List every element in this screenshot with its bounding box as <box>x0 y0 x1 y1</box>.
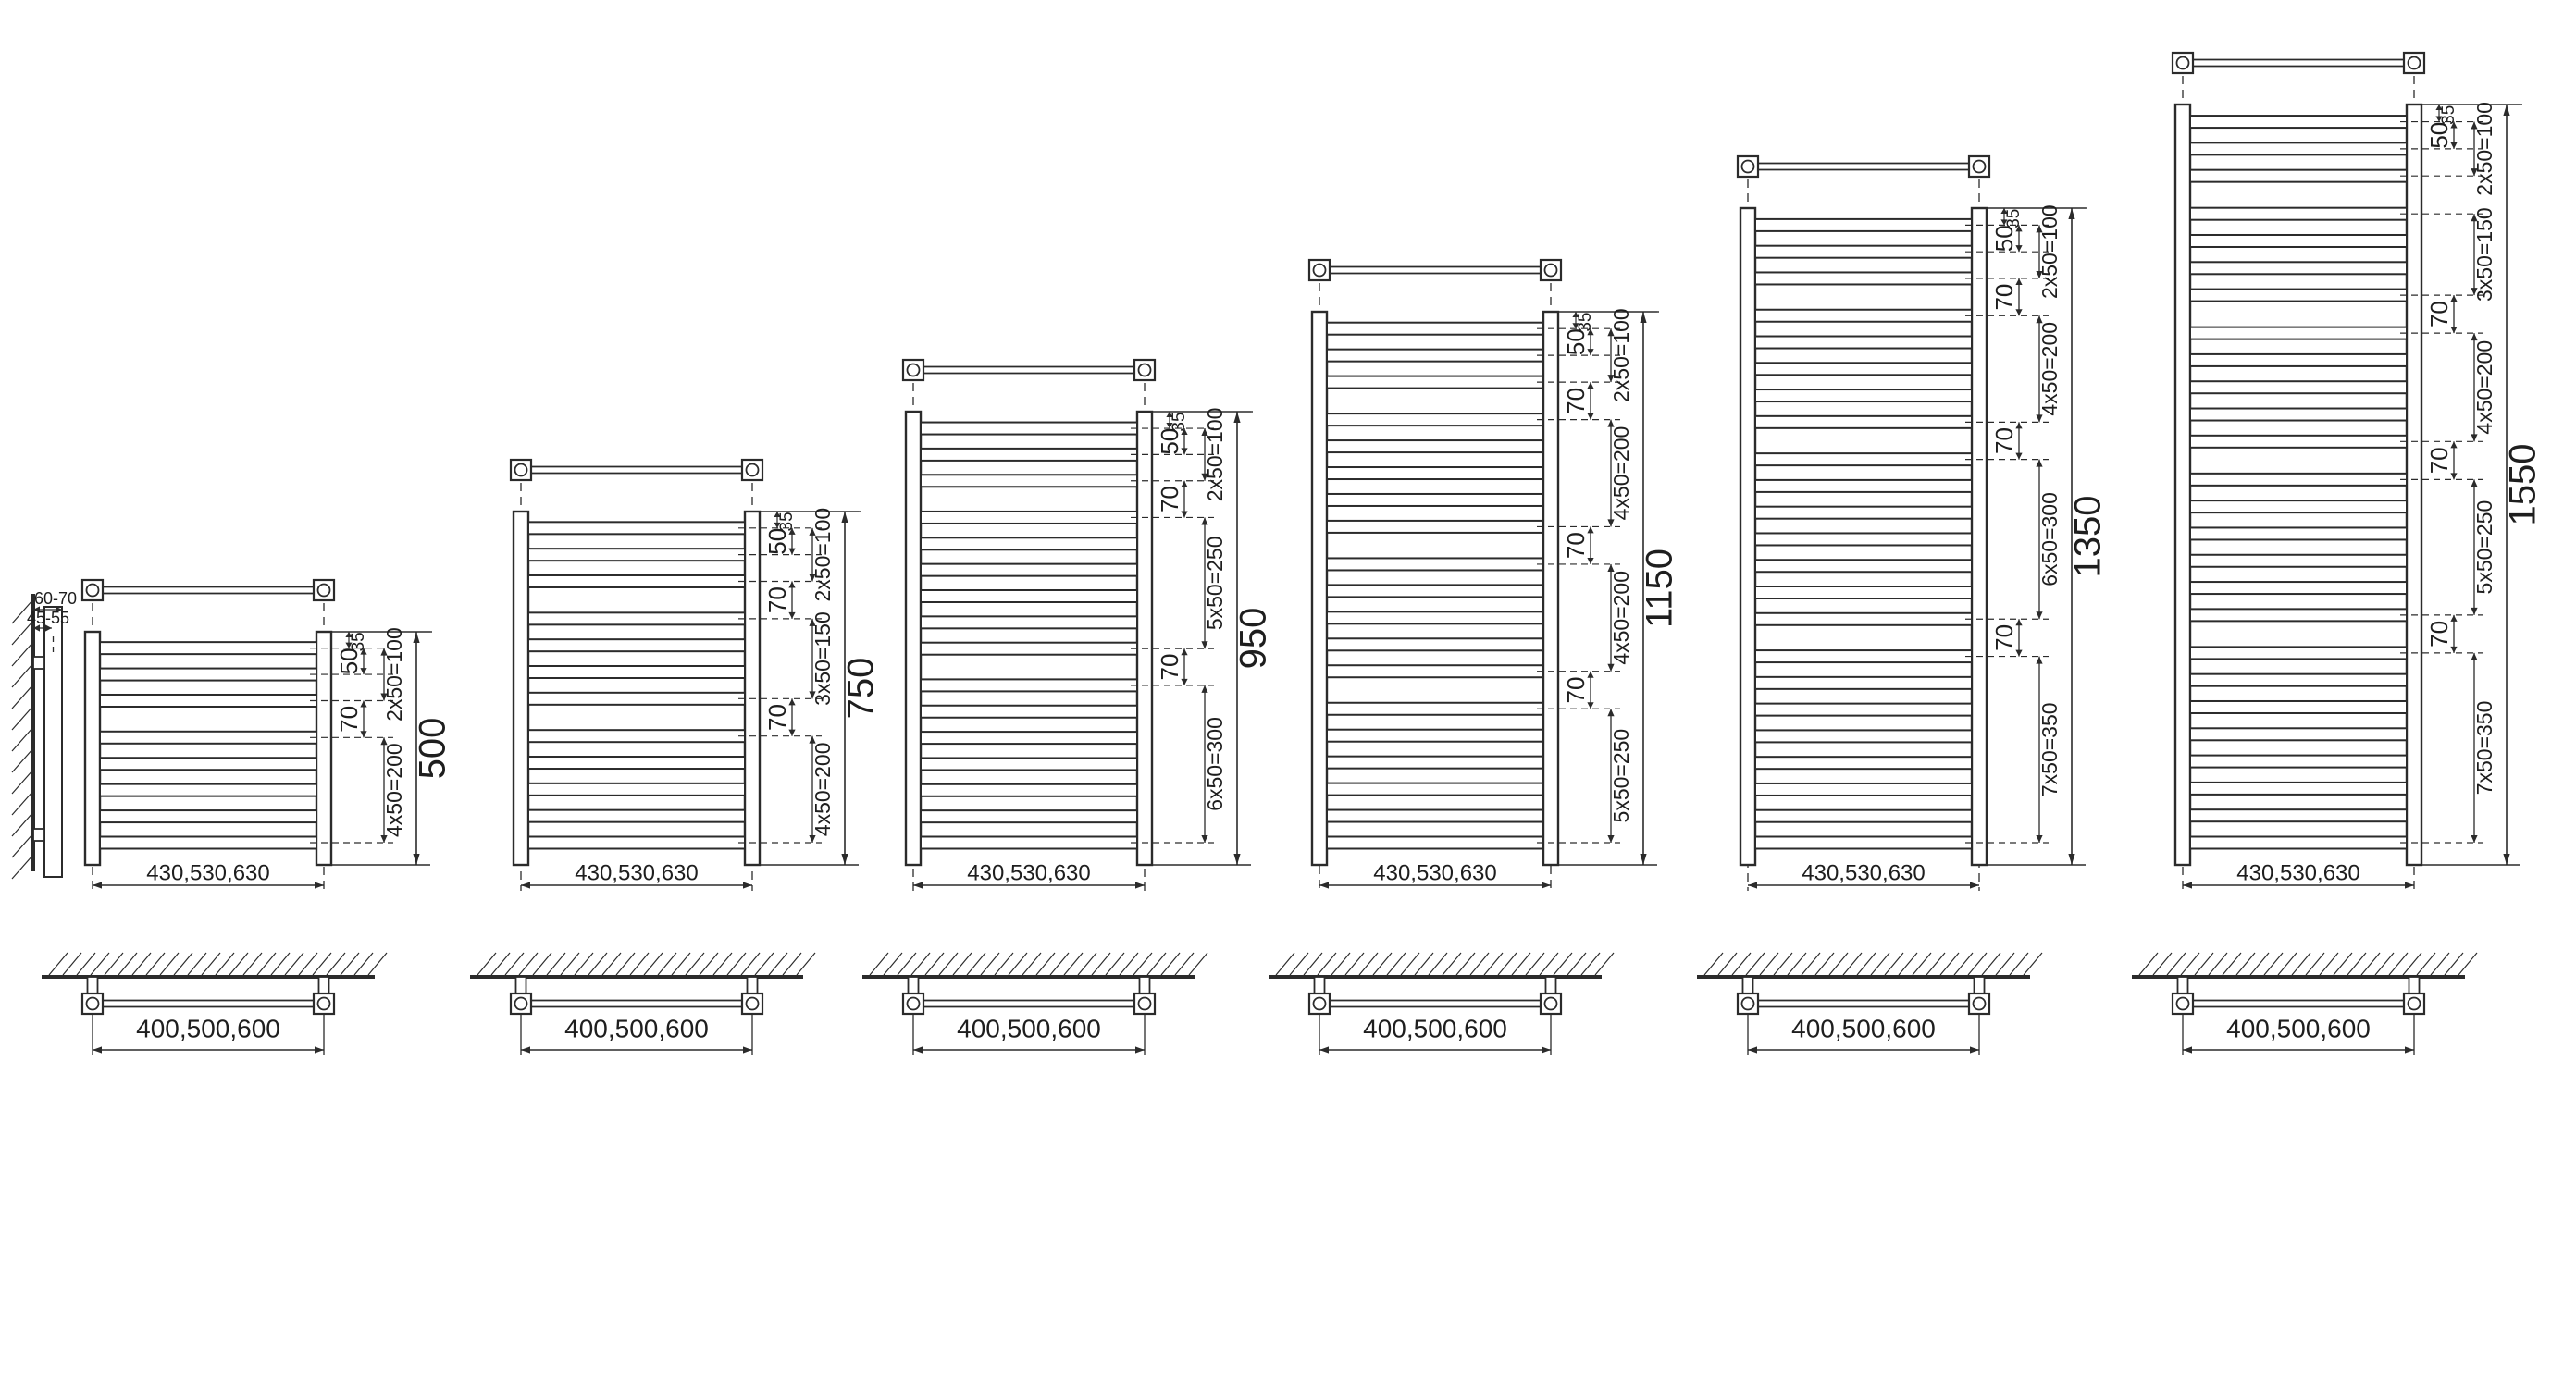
pitch-dimension: 50 <box>763 528 796 555</box>
top-offset-dim-label: 35 <box>2439 105 2458 125</box>
top-offset-dimension: 35 <box>2435 105 2458 125</box>
gap-dimension: 70 <box>763 581 796 618</box>
height-dim-label: 750 <box>841 658 882 720</box>
pitch-dim-label: 50 <box>763 528 791 555</box>
gap-dim-label: 70 <box>2425 447 2453 474</box>
group-dim-label: 2x50=100 <box>382 627 406 722</box>
width-dimension: 430,530,630 <box>521 860 752 888</box>
mount-spacing-label: 400,500,600 <box>2226 1014 2371 1042</box>
group-dimension: 2x50=100 <box>809 508 835 602</box>
mount-width-dimension: 400,500,600 <box>521 1014 752 1053</box>
gap-dim-label: 70 <box>1990 427 2018 454</box>
group-dim-label: 6x50=300 <box>1203 717 1227 811</box>
gap-dim-label: 70 <box>763 586 791 613</box>
group-dim-label: 7x50=350 <box>2472 701 2496 796</box>
pitch-dim-label: 50 <box>1562 328 1590 355</box>
front-view <box>2175 105 2421 865</box>
width-options-label: 430,530,630 <box>1373 860 1496 885</box>
radiator-500: 50035502x50=100704x50=200430,530,630400,… <box>42 580 453 1055</box>
group-dimension: 2x50=100 <box>380 627 406 722</box>
group-dim-label: 2x50=100 <box>1203 408 1227 502</box>
group-dimension: 2x50=100 <box>2036 204 2062 299</box>
overall-height-dimension: 500 <box>413 632 453 865</box>
width-options-label: 430,530,630 <box>1802 860 1925 885</box>
gap-dimension: 70 <box>763 698 796 735</box>
group-dim-label: 5x50=250 <box>1203 536 1227 630</box>
group-dimension: 3x50=150 <box>2471 207 2496 302</box>
width-dimension: 430,530,630 <box>2183 860 2414 888</box>
pitch-dimension: 50 <box>1562 328 1594 355</box>
group-dimension: 4x50=200 <box>1607 420 1633 527</box>
group-dimension: 2x50=100 <box>1201 408 1227 502</box>
pitch-dimension: 50 <box>335 648 367 674</box>
gap-dimension: 70 <box>1990 278 2023 315</box>
gap-dimension: 70 <box>1562 672 1594 709</box>
pitch-dim-label: 50 <box>335 648 363 674</box>
radiator-1550: 155035502x50=1003x50=150704x50=200705x50… <box>2132 53 2544 1055</box>
group-dimension: 2x50=100 <box>1607 308 1633 402</box>
group-dimension: 4x50=200 <box>809 736 835 843</box>
group-dim-label: 6x50=300 <box>2037 492 2062 586</box>
width-options-label: 430,530,630 <box>2236 860 2359 885</box>
pitch-dim-label: 50 <box>1156 428 1183 455</box>
height-dim-label: 1350 <box>2068 496 2109 578</box>
width-dimension: 430,530,630 <box>913 860 1145 888</box>
front-view <box>1740 208 1987 865</box>
gap-dim-label: 70 <box>1156 486 1183 512</box>
gap-dim-label: 70 <box>2425 301 2453 327</box>
group-dimension: 7x50=350 <box>2471 653 2496 843</box>
group-dim-label: 7x50=350 <box>2037 702 2062 796</box>
gap-dimension: 70 <box>1990 422 2023 459</box>
mount-spacing-label: 400,500,600 <box>957 1014 1101 1042</box>
width-dimension: 430,530,630 <box>1748 860 1979 888</box>
mount-spacing-label: 400,500,600 <box>1791 1014 1936 1042</box>
overall-height-dimension: 750 <box>841 512 882 865</box>
radiator-1350: 135035502x50=100704x50=200706x50=300707x… <box>1697 156 2109 1055</box>
overall-height-dimension: 1550 <box>2503 105 2544 865</box>
top-view <box>1309 260 1561 280</box>
gap-dimension: 70 <box>335 700 367 737</box>
pitch-dim-label: 50 <box>2425 122 2453 149</box>
height-dim-label: 500 <box>413 718 453 780</box>
width-options-label: 430,530,630 <box>967 860 1090 885</box>
gap-dim-label: 70 <box>763 704 791 731</box>
group-dim-label: 4x50=200 <box>811 742 835 836</box>
gap-dim-label: 70 <box>1990 624 2018 651</box>
mount-width-dimension: 400,500,600 <box>2183 1014 2414 1053</box>
group-dim-label: 5x50=250 <box>1609 729 1633 823</box>
mount-spacing-label: 400,500,600 <box>136 1014 280 1042</box>
gap-dimension: 70 <box>2425 441 2458 479</box>
gap-dimension: 70 <box>1990 619 2023 656</box>
width-dimension: 430,530,630 <box>1319 860 1551 888</box>
radiator-1150: 115035502x50=100704x50=200704x50=200705x… <box>1269 260 1680 1055</box>
group-dimension: 3x50=150 <box>809 611 835 706</box>
group-dim-label: 3x50=150 <box>811 611 835 706</box>
group-dimension: 5x50=250 <box>2471 479 2496 615</box>
group-dim-label: 2x50=100 <box>2472 102 2496 196</box>
group-dimension: 6x50=300 <box>1201 685 1227 843</box>
depth-total-label: 60-70 <box>34 589 77 608</box>
group-dimension: 7x50=350 <box>2036 657 2062 843</box>
group-dimension: 4x50=200 <box>380 737 406 843</box>
front-view <box>514 512 760 865</box>
gap-dim-label: 70 <box>1156 654 1183 681</box>
group-dim-label: 4x50=200 <box>2472 340 2496 435</box>
gap-dim-label: 70 <box>1562 677 1590 704</box>
group-dim-label: 4x50=200 <box>2037 322 2062 416</box>
group-dimension: 4x50=200 <box>2036 315 2062 422</box>
height-dim-label: 950 <box>1233 608 1274 670</box>
overall-height-dimension: 950 <box>1233 412 1274 865</box>
pitch-dimension: 50 <box>2425 122 2458 149</box>
group-dimension: 5x50=250 <box>1201 517 1227 648</box>
group-dimension: 2x50=100 <box>2471 102 2496 196</box>
group-dim-label: 2x50=100 <box>811 508 835 602</box>
gap-dim-label: 70 <box>1990 284 2018 311</box>
pitch-dimension: 50 <box>1156 428 1188 455</box>
group-dimension: 6x50=300 <box>2036 460 2062 620</box>
pitch-dim-label: 50 <box>1990 225 2018 252</box>
front-view <box>1312 312 1558 865</box>
height-dim-label: 1550 <box>2503 444 2544 526</box>
mount-width-dimension: 400,500,600 <box>913 1014 1145 1053</box>
overall-height-dimension: 1350 <box>2068 208 2109 865</box>
height-dim-label: 1150 <box>1640 549 1680 628</box>
top-view <box>903 360 1155 380</box>
mount-width-dimension: 400,500,600 <box>1319 1014 1551 1053</box>
group-dimension: 4x50=200 <box>1607 564 1633 672</box>
top-view <box>511 460 762 480</box>
gap-dim-label: 70 <box>1562 388 1590 414</box>
top-view <box>2173 53 2424 73</box>
radiator-750: 75035502x50=100703x50=150704x50=200430,5… <box>470 460 882 1055</box>
group-dimension: 5x50=250 <box>1607 709 1633 843</box>
group-dim-label: 2x50=100 <box>2037 204 2062 299</box>
width-options-label: 430,530,630 <box>575 860 698 885</box>
top-view <box>1738 156 1989 177</box>
gap-dimension: 70 <box>1156 481 1188 518</box>
gap-dim-label: 70 <box>2425 621 2453 648</box>
mount-width-dimension: 400,500,600 <box>1748 1014 1979 1053</box>
gap-dimension: 70 <box>1156 648 1188 685</box>
mount-spacing-label: 400,500,600 <box>564 1014 709 1042</box>
front-view <box>906 412 1152 865</box>
width-dimension: 430,530,630 <box>93 860 324 888</box>
radiator-dimension-drawing: 60-7045-5550035502x50=100704x50=200430,5… <box>0 0 2576 1394</box>
gap-dimension: 70 <box>1562 382 1594 420</box>
gap-dimension: 70 <box>2425 615 2458 653</box>
width-options-label: 430,530,630 <box>146 860 269 885</box>
group-dim-label: 4x50=200 <box>1609 571 1633 665</box>
gap-dimension: 70 <box>1562 526 1594 564</box>
side-view: 60-7045-55 <box>12 589 77 879</box>
bracket-depth-label: 45-55 <box>27 609 69 627</box>
group-dim-label: 3x50=150 <box>2472 207 2496 302</box>
group-dim-label: 5x50=250 <box>2472 500 2496 595</box>
gap-dim-label: 70 <box>335 706 363 733</box>
group-dimension: 4x50=200 <box>2471 333 2496 441</box>
mount-width-dimension: 400,500,600 <box>93 1014 324 1053</box>
front-view <box>85 632 331 865</box>
group-dim-label: 4x50=200 <box>1609 426 1633 521</box>
group-dim-label: 2x50=100 <box>1609 308 1633 402</box>
radiator-950: 95035502x50=100705x50=250706x50=300430,5… <box>862 360 1274 1055</box>
pitch-dimension: 50 <box>1990 225 2023 252</box>
overall-height-dimension: 1150 <box>1640 312 1680 865</box>
top-view <box>82 580 334 600</box>
technical-drawing-canvas: 60-7045-5550035502x50=100704x50=200430,5… <box>0 0 2576 1394</box>
gap-dim-label: 70 <box>1562 532 1590 559</box>
mount-spacing-label: 400,500,600 <box>1363 1014 1507 1042</box>
group-dim-label: 4x50=200 <box>382 743 406 837</box>
gap-dimension: 70 <box>2425 295 2458 333</box>
